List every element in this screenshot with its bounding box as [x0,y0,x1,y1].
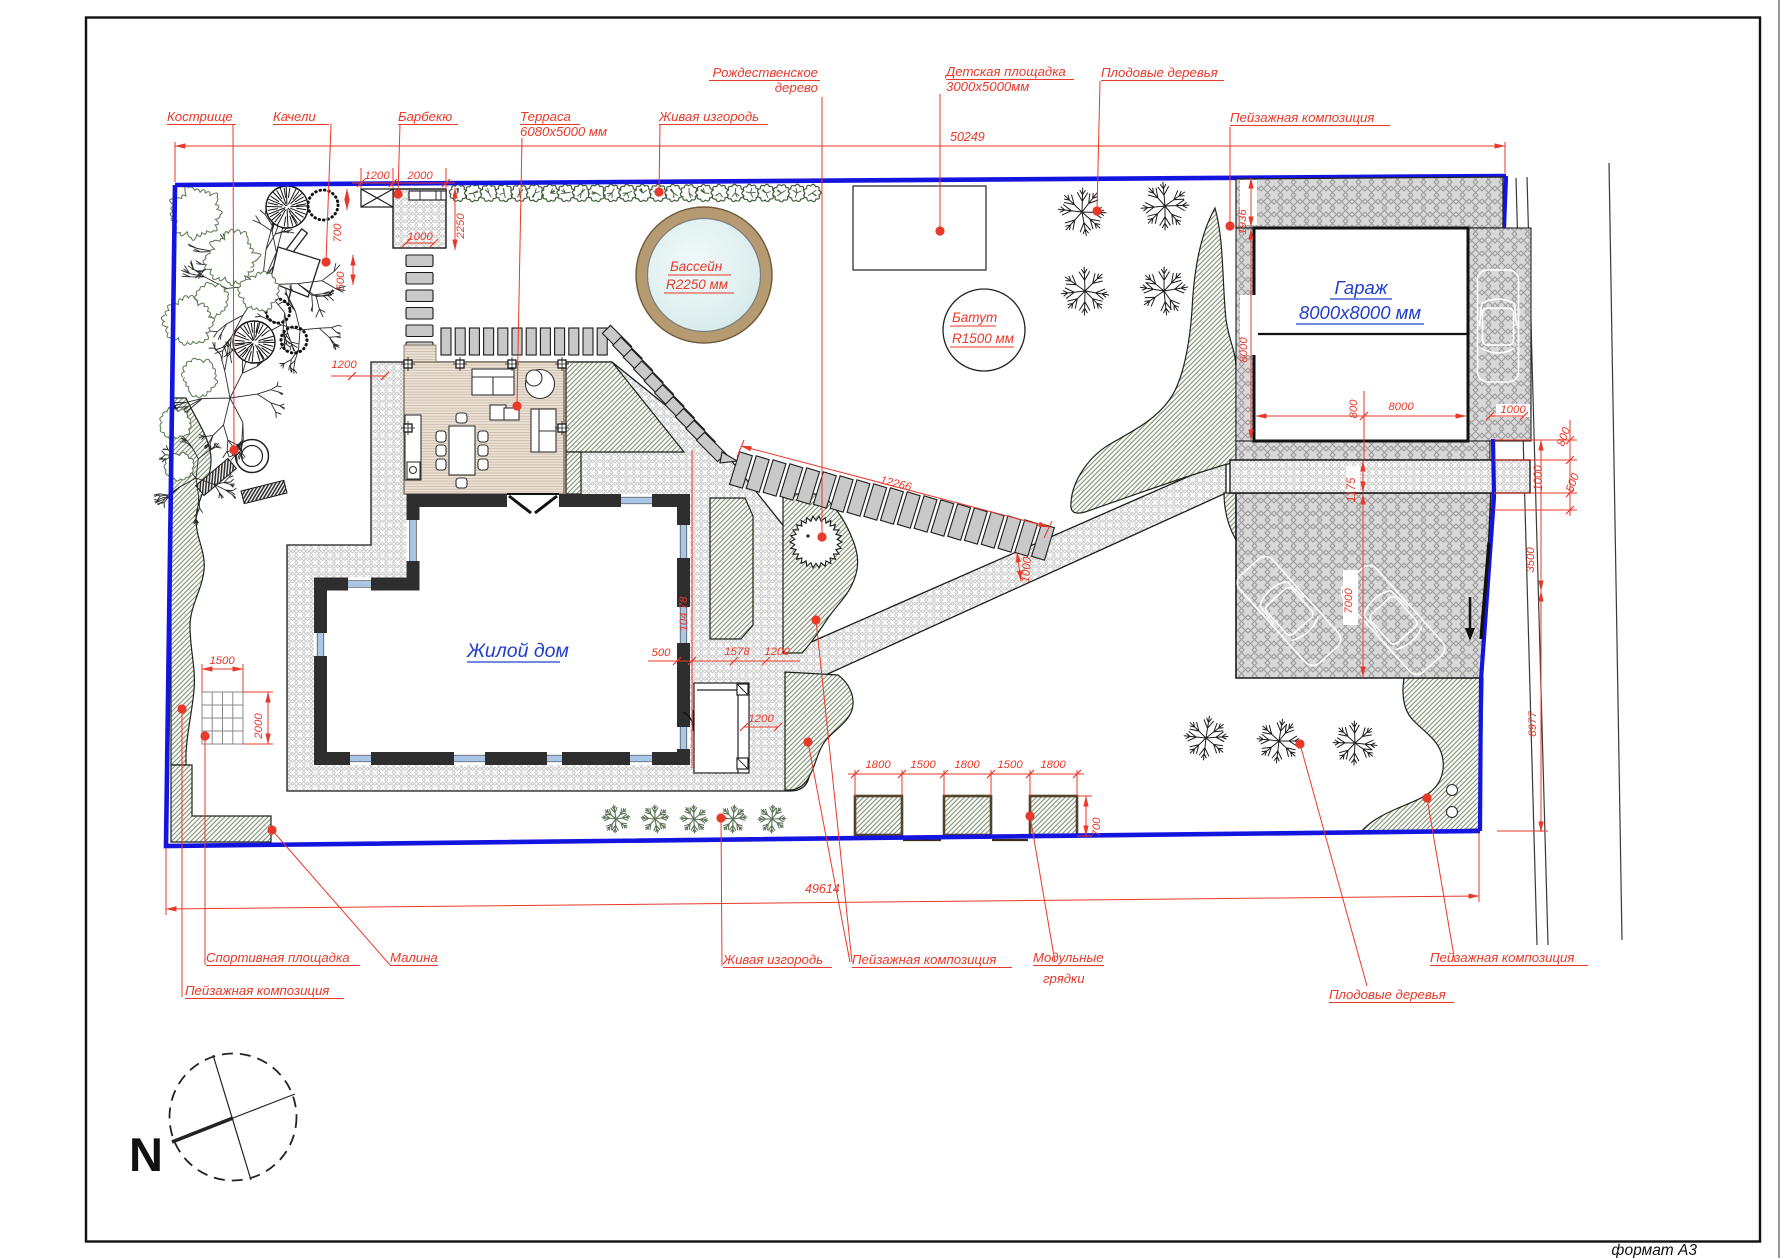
svg-text:1800: 1800 [954,759,980,771]
svg-text:2250: 2250 [455,213,467,240]
svg-text:Терраса: Терраса [520,109,571,124]
svg-text:1200: 1200 [748,713,774,725]
svg-text:1000: 1000 [1500,404,1526,416]
svg-text:8000х8000 мм: 8000х8000 мм [1299,302,1421,323]
svg-text:Детская площадка: Детская площадка [944,64,1066,79]
svg-text:грядки: грядки [1043,971,1085,986]
svg-text:1000: 1000 [1533,465,1545,491]
svg-text:6080х5000 мм: 6080х5000 мм [520,124,607,139]
svg-text:500: 500 [335,271,347,291]
svg-text:Плодовые деревья: Плодовые деревья [1101,65,1218,80]
svg-text:Пейзажная композиция: Пейзажная композиция [1230,110,1374,125]
svg-text:Бассейн: Бассейн [670,259,723,274]
svg-text:3500: 3500 [1525,547,1537,573]
svg-text:1936: 1936 [1237,209,1249,235]
svg-text:1200: 1200 [331,359,357,371]
svg-text:Живая изгородь: Живая изгородь [658,109,759,124]
svg-text:50249: 50249 [950,130,985,144]
svg-text:формат А3: формат А3 [1611,1242,1697,1258]
svg-text:1200: 1200 [364,170,390,182]
svg-text:3000х5000мм: 3000х5000мм [946,79,1029,94]
svg-text:Пейзажная композиция: Пейзажная композиция [1430,950,1574,965]
svg-text:Жилой дом: Жилой дом [466,640,569,662]
svg-text:1800: 1800 [865,759,891,771]
svg-text:7000: 7000 [1343,588,1355,614]
svg-text:1800: 1800 [1040,759,1066,771]
svg-text:Малина: Малина [390,950,438,965]
svg-text:N: N [129,1128,163,1181]
svg-text:Спортивная площадка: Спортивная площадка [206,950,350,965]
svg-text:Качели: Качели [273,109,316,124]
svg-text:1200: 1200 [764,646,790,658]
svg-text:2000: 2000 [253,713,265,740]
svg-text:1000: 1000 [407,231,433,243]
svg-text:8000: 8000 [1388,401,1414,413]
svg-text:104 78: 104 78 [678,596,690,632]
svg-text:1500: 1500 [209,655,235,667]
svg-text:1175: 1175 [1346,477,1358,502]
svg-text:Кострище: Кострище [167,109,233,124]
svg-text:дерево: дерево [775,80,818,95]
svg-text:1578: 1578 [724,646,750,658]
svg-text:Пейзажная композиция: Пейзажная композиция [185,983,329,998]
svg-text:8977: 8977 [1527,711,1539,737]
svg-text:8000: 8000 [1238,337,1250,363]
svg-text:800: 800 [1348,399,1360,419]
svg-text:Рождественское: Рождественское [713,65,819,80]
svg-text:2000: 2000 [406,170,433,182]
svg-text:R2250 мм: R2250 мм [666,277,728,292]
svg-text:Модульные: Модульные [1033,950,1104,965]
svg-text:Гараж: Гараж [1334,277,1388,298]
svg-text:49614: 49614 [805,882,840,896]
svg-text:Живая изгородь: Живая изгородь [722,952,823,967]
svg-text:700: 700 [1091,817,1103,837]
svg-text:700: 700 [332,223,344,243]
svg-text:Барбекю: Барбекю [398,109,452,124]
svg-text:R1500 мм: R1500 мм [952,331,1014,346]
svg-text:Пейзажная композиция: Пейзажная композиция [852,952,996,967]
svg-text:Плодовые деревья: Плодовые деревья [1329,987,1446,1002]
svg-text:1000: 1000 [1020,556,1034,583]
svg-text:1500: 1500 [910,759,936,771]
svg-text:Батут: Батут [952,310,997,325]
svg-text:500: 500 [651,647,671,659]
svg-text:1500: 1500 [997,759,1023,771]
